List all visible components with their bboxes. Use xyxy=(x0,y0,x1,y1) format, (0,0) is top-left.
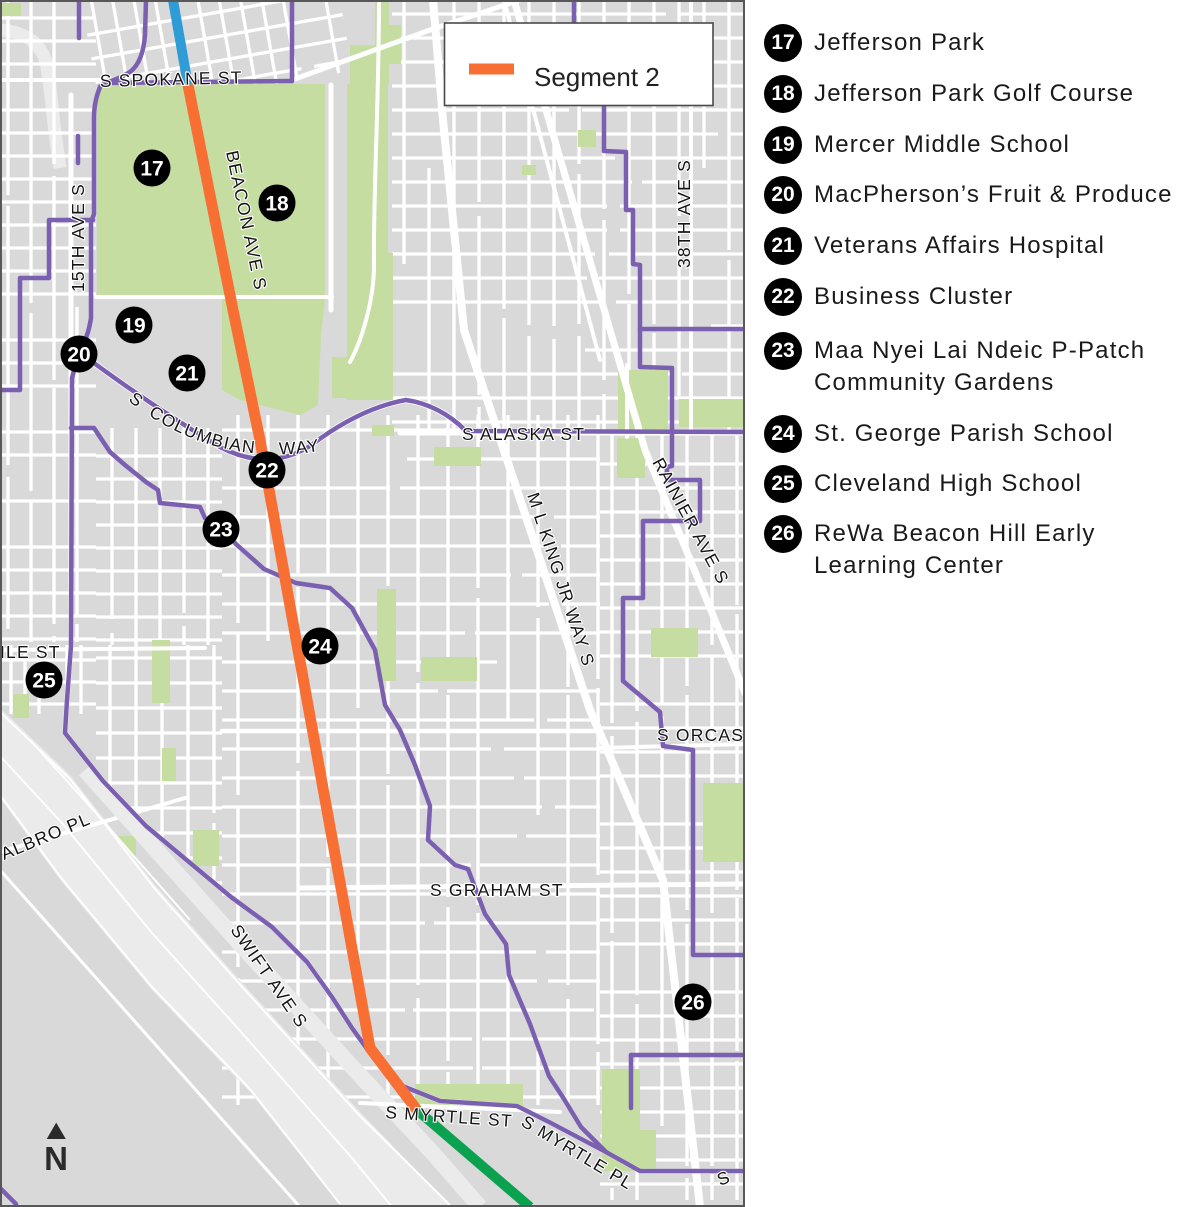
svg-text:21: 21 xyxy=(175,363,199,386)
svg-text:17: 17 xyxy=(140,158,163,181)
svg-text:Segment 2: Segment 2 xyxy=(534,62,660,92)
svg-text:15TH AVE S: 15TH AVE S xyxy=(68,183,88,292)
svg-text:22: 22 xyxy=(255,460,278,483)
svg-text:26: 26 xyxy=(681,992,704,1015)
svg-text:19: 19 xyxy=(122,315,145,338)
svg-text:N: N xyxy=(44,1140,68,1177)
svg-text:20: 20 xyxy=(67,344,90,367)
svg-text:S ORCAS: S ORCAS xyxy=(657,725,744,745)
svg-text:25: 25 xyxy=(32,670,56,693)
svg-text:38TH AVE S: 38TH AVE S xyxy=(674,159,694,268)
svg-text:ILE ST: ILE ST xyxy=(0,642,61,662)
svg-text:23: 23 xyxy=(209,519,232,542)
svg-text:18: 18 xyxy=(265,193,289,216)
svg-text:S GRAHAM ST: S GRAHAM ST xyxy=(430,880,564,900)
svg-text:S ALASKA ST: S ALASKA ST xyxy=(462,424,585,444)
svg-text:S SPOKANE ST: S SPOKANE ST xyxy=(100,67,243,91)
svg-text:24: 24 xyxy=(308,636,332,659)
